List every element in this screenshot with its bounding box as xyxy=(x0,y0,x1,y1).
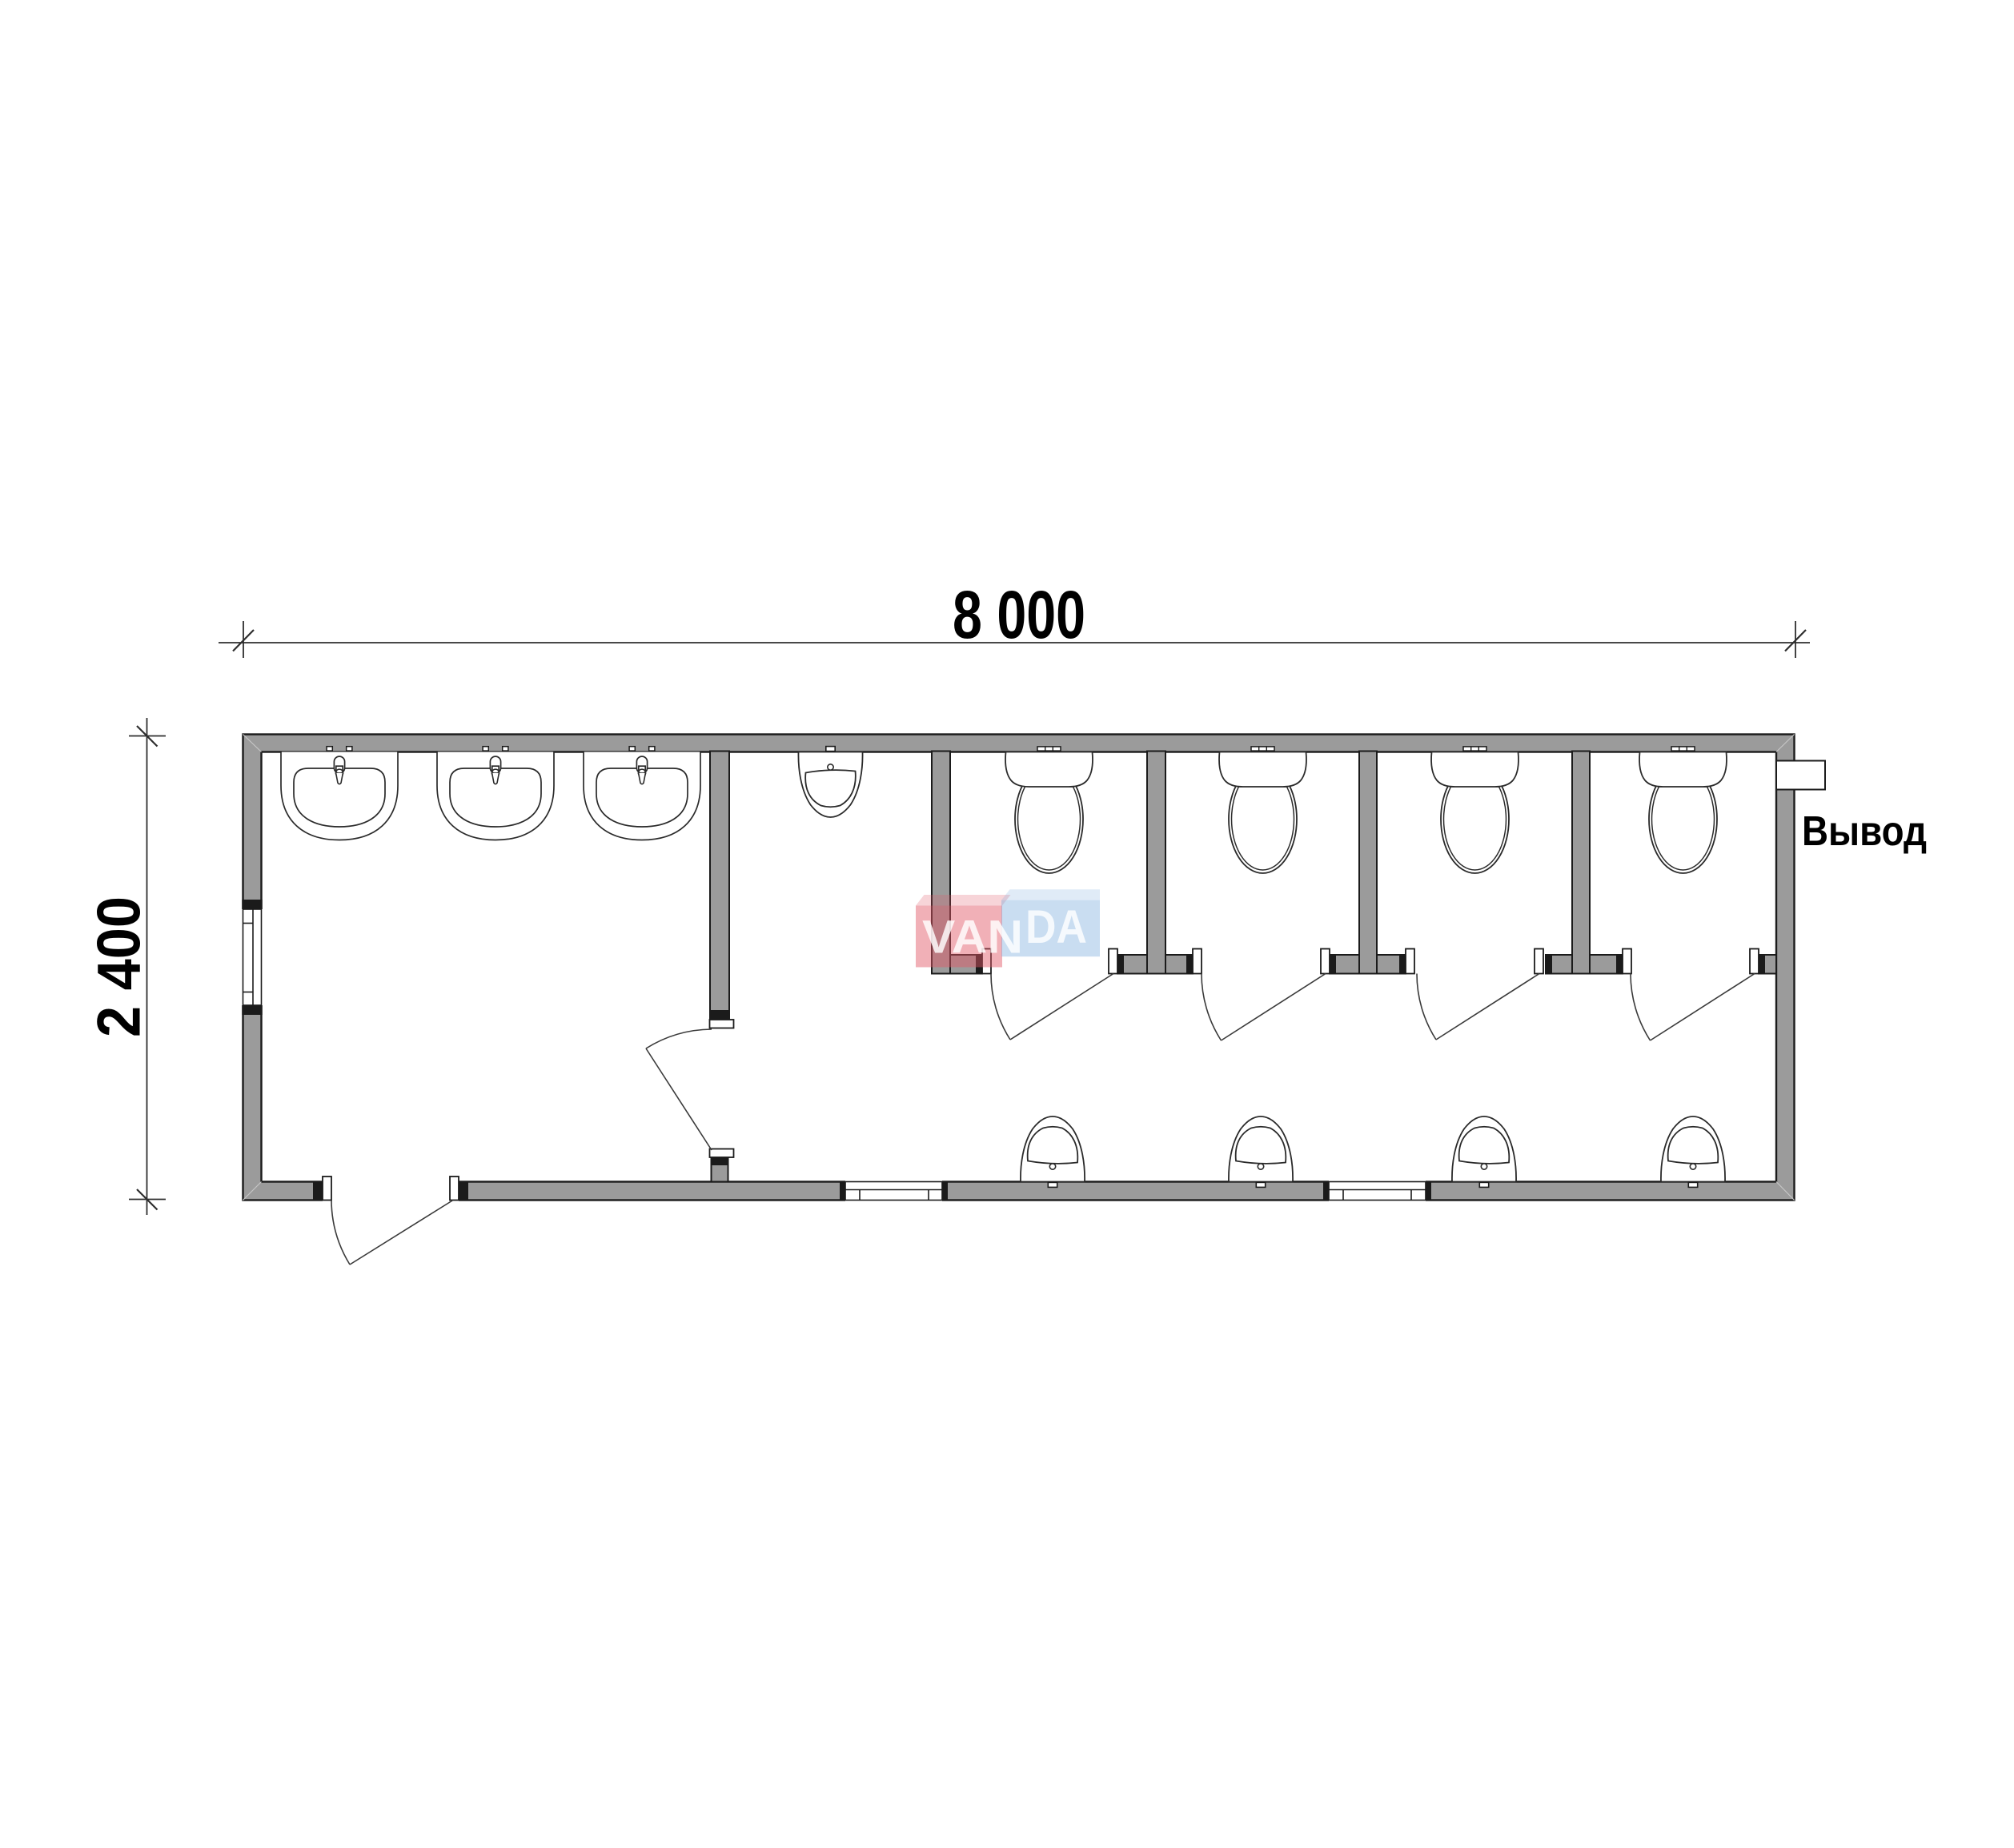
svg-text:Вывод: Вывод xyxy=(1802,808,1927,855)
svg-text:VAN: VAN xyxy=(922,912,1023,964)
svg-text:2 400: 2 400 xyxy=(86,896,154,1037)
svg-text:8 000: 8 000 xyxy=(953,577,1085,652)
svg-text:DA: DA xyxy=(1025,901,1087,953)
